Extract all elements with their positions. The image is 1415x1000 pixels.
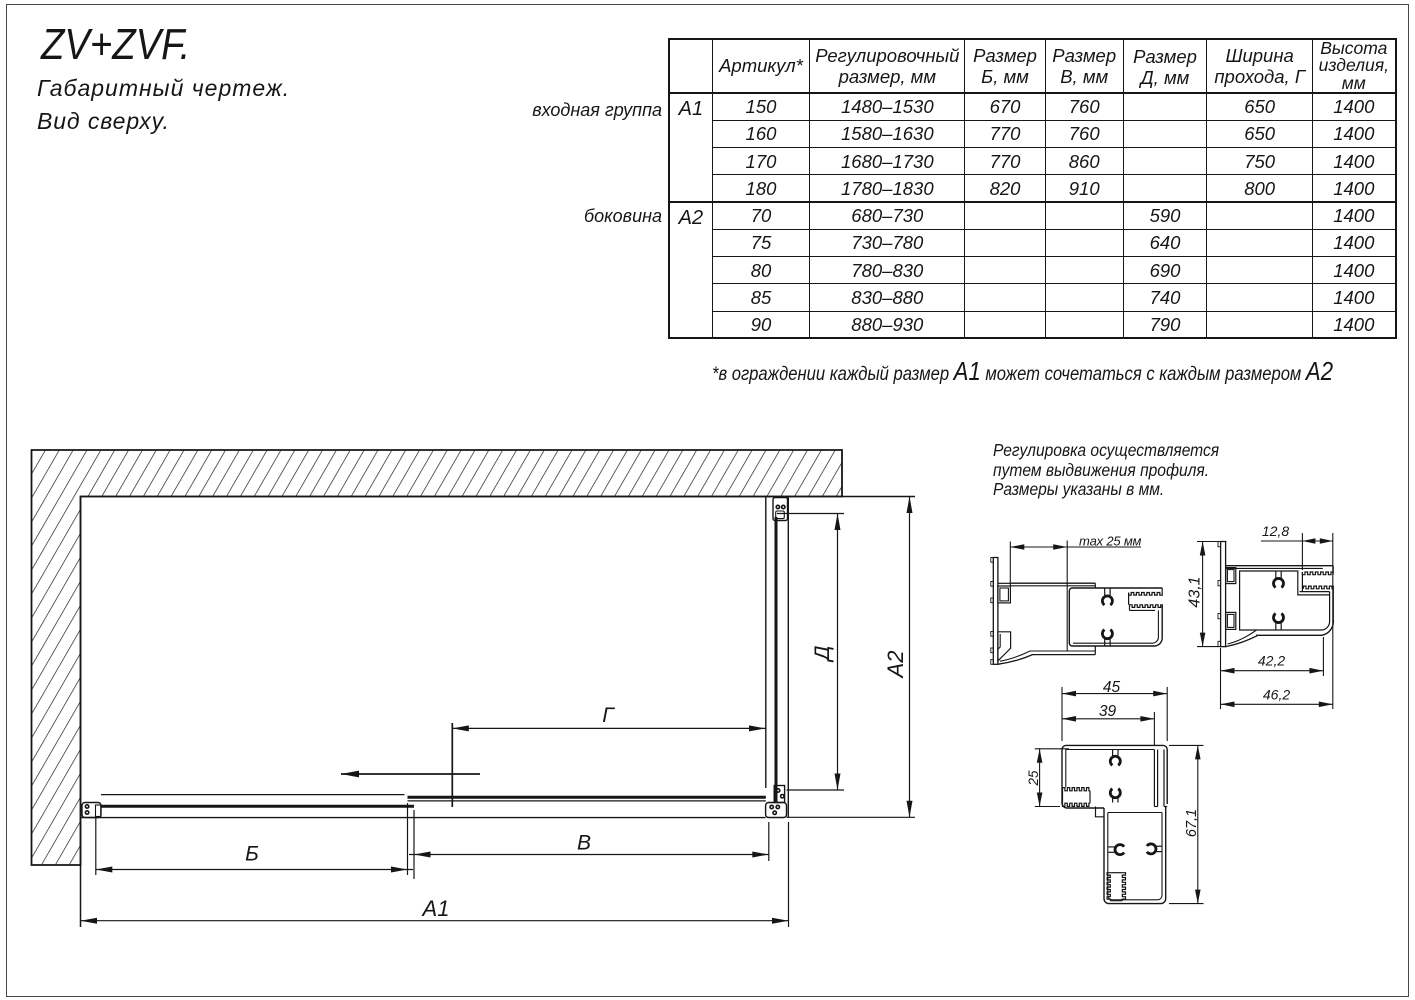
svg-text:43,1: 43,1	[1187, 576, 1204, 607]
svg-text:12,8: 12,8	[1262, 523, 1289, 539]
svg-text:Д: Д	[811, 645, 834, 662]
svg-text:max 25 мм: max 25 мм	[1079, 534, 1142, 549]
svg-text:45: 45	[1103, 679, 1121, 696]
svg-text:25: 25	[1026, 770, 1041, 787]
svg-text:А2: А2	[883, 651, 908, 680]
svg-text:42,2: 42,2	[1258, 653, 1285, 669]
svg-text:В: В	[577, 832, 591, 855]
svg-text:А1: А1	[421, 896, 450, 921]
svg-text:Г: Г	[602, 704, 615, 727]
svg-text:39: 39	[1099, 703, 1117, 720]
svg-text:46,2: 46,2	[1263, 687, 1290, 703]
svg-text:Б: Б	[245, 843, 259, 866]
svg-text:67,1: 67,1	[1184, 809, 1200, 837]
